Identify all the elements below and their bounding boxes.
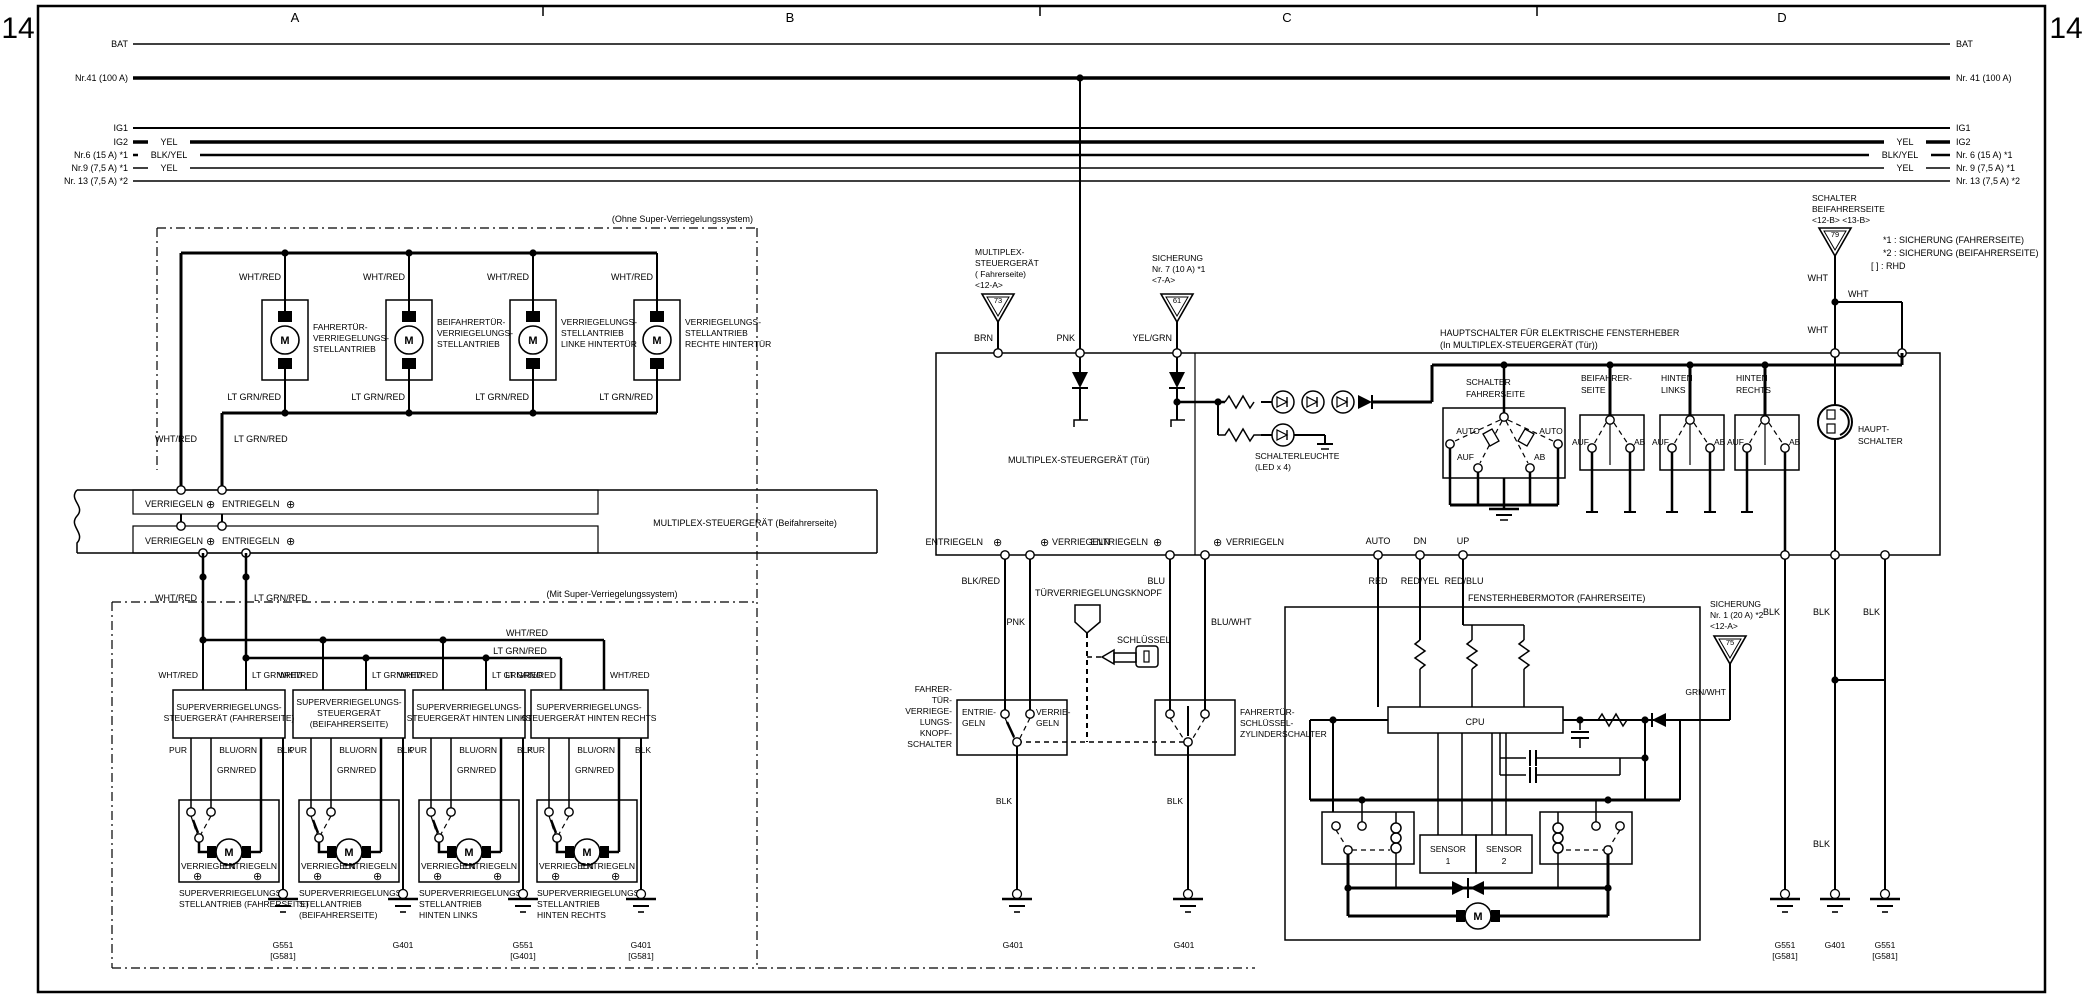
zylinderschalter-label: ZYLINDERSCHALTER bbox=[1240, 729, 1327, 739]
wire-whtred: WHT/RED bbox=[158, 670, 198, 680]
wire-ltgrnred: LT GRN/RED bbox=[475, 392, 529, 402]
plus-icon: ⊕ bbox=[1213, 537, 1222, 549]
wire-grnred: GRN/RED bbox=[457, 765, 496, 775]
entriegeln-label: ENTRIEGELN bbox=[581, 861, 635, 871]
section-ohne-label: (Ohne Super-Verriegelungssystem) bbox=[612, 214, 753, 224]
label-line: STELLANTRIEB bbox=[437, 339, 500, 349]
section-mit-label: (Mit Super-Verriegelungssystem) bbox=[546, 589, 677, 599]
actuator-label: SUPERVERRIEGELUNGS- bbox=[419, 888, 524, 898]
actuator-label: SUPERVERRIEGELUNGS- bbox=[537, 888, 642, 898]
ground-label: [G581] bbox=[1872, 951, 1898, 961]
plus-icon: ⊕ bbox=[313, 871, 322, 883]
ab-label: AB bbox=[1534, 452, 1546, 462]
ground-label: G551 bbox=[1775, 940, 1796, 950]
actuator-label: SUPERVERRIEGELUNGS- bbox=[179, 888, 284, 898]
haupt-schalter-label: HAUPT- bbox=[1858, 424, 1889, 434]
switch-title: SEITE bbox=[1581, 385, 1606, 395]
led-icon bbox=[1272, 424, 1294, 446]
plus-icon: ⊕ bbox=[551, 871, 560, 883]
wire-pnk: PNK bbox=[1056, 333, 1075, 343]
ground-symbol bbox=[1173, 890, 1203, 913]
label-line: VERRIEGELUNGS- bbox=[313, 333, 389, 343]
super-lock-units: SUPERVERRIEGELUNGS- STEUERGERÄT (FAHRERS… bbox=[164, 690, 657, 961]
wire-pur: PUR bbox=[527, 745, 545, 755]
sensor1-label: SENSOR bbox=[1430, 844, 1466, 854]
actuator-label: STELLANTRIEB bbox=[419, 899, 482, 909]
entriegeln-label: ENTRIEGELN bbox=[343, 861, 397, 871]
door-lock-switches: BLK/RED PNK TÜRVERRIEGELUNGSKNOPF SCHLÜS… bbox=[905, 559, 1327, 950]
mux-fahrer-label: ( Fahrerseite) bbox=[975, 269, 1026, 279]
note-2: *2 : SICHERUNG (BEIFAHRERSEITE) bbox=[1883, 248, 2039, 258]
bus-nr6-left: Nr.6 (15 A) *1 bbox=[74, 150, 128, 160]
wire-grnred: GRN/RED bbox=[217, 765, 256, 775]
switch-title: HINTEN bbox=[1736, 373, 1768, 383]
verrie-label: VERRIE- bbox=[1036, 707, 1071, 717]
power-buses: BAT Nr.41 (100 A) IG1 IG2 Nr.6 (15 A) *1… bbox=[64, 39, 2020, 186]
motor-m: M bbox=[652, 335, 661, 347]
knopfschalter-label: KNOPF- bbox=[920, 728, 952, 738]
wire-yel-nr9-right: YEL bbox=[1896, 163, 1913, 173]
column-c: C bbox=[1282, 10, 1291, 25]
mux-fahrer-label: MULTIPLEX- bbox=[975, 247, 1025, 257]
unit-label: STEUERGERÄT (FAHRERSEITE) bbox=[164, 713, 295, 723]
verrie-label: GELN bbox=[1036, 718, 1059, 728]
schalterleuchte-label: (LED x 4) bbox=[1255, 462, 1291, 472]
relay-left bbox=[1322, 800, 1414, 888]
multiplex-tuer-box: MULTIPLEX-STEUERGERÄT (Tür) bbox=[925, 328, 1940, 559]
ground-label: [G581] bbox=[1772, 951, 1798, 961]
haupt-schalter-label: SCHALTER bbox=[1858, 436, 1903, 446]
label-line: VERRIEGELUNGS- bbox=[561, 317, 637, 327]
bus-ig2-left: IG2 bbox=[113, 137, 128, 147]
switch-title: BEIFAHRER- bbox=[1581, 373, 1632, 383]
bus-nr13-right: Nr. 13 (7,5 A) *2 bbox=[1956, 176, 2020, 186]
wire-blk: BLK bbox=[996, 796, 1012, 806]
wire-bluorn: BLU/ORN bbox=[577, 745, 615, 755]
label-line: STELLANTRIEB bbox=[685, 328, 748, 338]
ground-symbol bbox=[1770, 890, 1800, 913]
bus-bat-left: BAT bbox=[111, 39, 128, 49]
wire-redyel: RED/YEL bbox=[1401, 576, 1440, 586]
window-motor: M bbox=[1344, 878, 1611, 929]
auf-label: AUF bbox=[1727, 437, 1744, 447]
led-icon bbox=[1302, 391, 1324, 413]
row2-verriegeln: VERRIEGELN bbox=[145, 536, 203, 546]
label-line: VERRIEGELUNGS- bbox=[685, 317, 761, 327]
schluessel-label: SCHLÜSSEL bbox=[1117, 635, 1171, 645]
schalter-beifahrer-label: SCHALTER bbox=[1812, 193, 1857, 203]
wire-pur: PUR bbox=[289, 745, 307, 755]
ground-label: G401 bbox=[1825, 940, 1846, 950]
auto-label: AUTO bbox=[1539, 426, 1563, 436]
plus-icon: ⊕ bbox=[206, 499, 215, 511]
wire-wht: WHT bbox=[1808, 325, 1829, 335]
ground-label: G401 bbox=[393, 940, 414, 950]
wire-blk: BLK bbox=[1863, 607, 1880, 617]
terminal-entriegeln: ENTRIEGELN bbox=[1090, 537, 1148, 547]
unit-label: (BEIFAHRERSEITE) bbox=[310, 719, 389, 729]
cpu-label: CPU bbox=[1465, 717, 1484, 727]
ground-label: [G581] bbox=[628, 951, 654, 961]
ground-label: G551 bbox=[513, 940, 534, 950]
wire-wht: WHT bbox=[1848, 289, 1869, 299]
super-unit-passenger: SUPERVERRIEGELUNGS- STEUERGERÄT (BEIFAHR… bbox=[289, 690, 418, 950]
ground-label: G401 bbox=[631, 940, 652, 950]
ground-label: [G401] bbox=[510, 951, 536, 961]
terminal-up: UP bbox=[1457, 536, 1470, 546]
wire-pur: PUR bbox=[409, 745, 427, 755]
fenstermotor-title: FENSTERHEBERMOTOR (FAHRERSEITE) bbox=[1468, 593, 1645, 603]
wire-blk: BLK bbox=[1813, 839, 1830, 849]
wire-whtred: WHT/RED bbox=[487, 272, 529, 282]
wire-whtred: WHT/RED bbox=[363, 272, 405, 282]
plus-icon: ⊕ bbox=[611, 871, 620, 883]
haupt-schalter: HAUPT- SCHALTER bbox=[1818, 357, 1903, 555]
schalter-beifahrer-label: <12-B> <13-B> bbox=[1812, 215, 1870, 225]
bus-nr6-right: Nr. 6 (15 A) *1 bbox=[1956, 150, 2013, 160]
auf-label: AUF bbox=[1652, 437, 1669, 447]
switch-title: LINKS bbox=[1661, 385, 1686, 395]
passenger-window-switch: BEIFAHRER- SEITE AUF AB bbox=[1572, 365, 1646, 512]
sicherung1-label: Nr. 1 (20 A) *2 bbox=[1710, 610, 1764, 620]
connector-number: 79 bbox=[1831, 230, 1839, 239]
label-line: STELLANTRIEB bbox=[313, 344, 376, 354]
schalter-beifahrer-label: BEIFAHRERSEITE bbox=[1812, 204, 1885, 214]
plus-icon: ⊕ bbox=[193, 871, 202, 883]
label-line: RECHTE HINTERTÜR bbox=[685, 339, 771, 349]
note-1: *1 : SICHERUNG (FAHRERSEITE) bbox=[1883, 235, 2024, 245]
column-a: A bbox=[291, 10, 300, 25]
unit-label: STEUERGERÄT HINTEN LINKS bbox=[407, 713, 532, 723]
motor-m: M bbox=[404, 335, 413, 347]
wire-ltgrnred: LT GRN/RED bbox=[351, 392, 405, 402]
entriegeln-label: ENTRIEGELN bbox=[463, 861, 517, 871]
sensor2-label: 2 bbox=[1502, 856, 1507, 866]
ground-symbol bbox=[1820, 890, 1850, 913]
ground-label: [G581] bbox=[270, 951, 296, 961]
terminal-entriegeln: ENTRIEGELN bbox=[925, 537, 983, 547]
mux-fahrer-label: <12-A> bbox=[975, 280, 1003, 290]
bus-nr41-right: Nr. 41 (100 A) bbox=[1956, 73, 2012, 83]
plus-icon: ⊕ bbox=[1040, 537, 1049, 549]
wire-blk: BLK bbox=[1813, 607, 1830, 617]
actuator-label: STELLANTRIEB bbox=[537, 899, 600, 909]
wire-grnred: GRN/RED bbox=[337, 765, 376, 775]
wire-ltgrnred: LT GRN/RED bbox=[254, 593, 308, 603]
switch-title: HINTEN bbox=[1661, 373, 1693, 383]
bus-whtred-label: WHT/RED bbox=[506, 628, 548, 638]
actuator-label: HINTEN RECHTS bbox=[537, 910, 606, 920]
sheet-number-right: 14 bbox=[2049, 12, 2082, 45]
driver-window-switch: SCHALTER FAHRERSEITE AUTO AUTO AUF AB bbox=[1443, 365, 1565, 520]
auf-label: AUF bbox=[1457, 452, 1474, 462]
hauptschalter-header: HAUPTSCHALTER FÜR ELEKTRISCHE FENSTERHEB… bbox=[1440, 328, 1680, 338]
bus-bat-right: BAT bbox=[1956, 39, 1973, 49]
actuator-label: SUPERVERRIEGELUNGS- bbox=[299, 888, 404, 898]
label-line: LINKE HINTERTÜR bbox=[561, 339, 637, 349]
wire-pur: PUR bbox=[169, 745, 187, 755]
auf-label: AUF bbox=[1572, 437, 1589, 447]
wire-pnk: PNK bbox=[1006, 617, 1025, 627]
hauptschalter-header: (In MULTIPLEX-STEUERGERÄT (Tür)) bbox=[1440, 340, 1598, 350]
knopfschalter-label: SCHALTER bbox=[907, 739, 952, 749]
wire-ltgrnred: LT GRN/RED bbox=[227, 392, 281, 402]
entrie-label: GELN bbox=[962, 718, 985, 728]
bus-nr9-right: Nr. 9 (7,5 A) *1 bbox=[1956, 163, 2015, 173]
knopfschalter-label: VERRIEGE- bbox=[905, 706, 952, 716]
wire-ltgrnred: LT GRN/RED bbox=[599, 392, 653, 402]
motor-m: M bbox=[280, 335, 289, 347]
motor-m: M bbox=[1473, 911, 1482, 923]
right-side: SCHALTER BEIFAHRERSEITE <12-B> <13-B> 79… bbox=[1763, 193, 2039, 961]
sicherung1-label: SICHERUNG bbox=[1710, 599, 1761, 609]
bus-nr9-left: Nr.9 (7,5 A) *1 bbox=[71, 163, 128, 173]
wire-bluorn: BLU/ORN bbox=[219, 745, 257, 755]
ground-label: G551 bbox=[273, 940, 294, 950]
bus-ig2-right: IG2 bbox=[1956, 137, 1971, 147]
actuator-label: STELLANTRIEB bbox=[299, 899, 362, 909]
wire-whtred: WHT/RED bbox=[155, 593, 197, 603]
wiring-diagram: 14 14 A B C D BAT Nr.41 (100 A) IG1 IG2 … bbox=[0, 0, 2084, 1000]
led-icon bbox=[1332, 391, 1354, 413]
entrie-label: ENTRIE- bbox=[962, 707, 996, 717]
wire-yel-nr9-left: YEL bbox=[160, 163, 177, 173]
wire-ltgrnred: LT GRN/RED bbox=[505, 670, 556, 680]
internal-diode-2 bbox=[1169, 357, 1185, 427]
wire-whtred: WHT/RED bbox=[239, 272, 281, 282]
wire-whtred: WHT/RED bbox=[610, 670, 650, 680]
motor-m: M bbox=[582, 847, 591, 859]
terminal-verriegeln: VERRIEGELN bbox=[1226, 537, 1284, 547]
connector-number: 75 bbox=[1726, 638, 1734, 647]
rear-right-window-switch: HINTEN RECHTS AUF AB bbox=[1727, 365, 1801, 555]
wire-ltgrnred: LT GRN/RED bbox=[234, 434, 288, 444]
wire-whtred: WHT/RED bbox=[611, 272, 653, 282]
middle-feeds: MULTIPLEX- STEUERGERÄT ( Fahrerseite) <1… bbox=[974, 74, 1206, 349]
note-3: [ ] : RHD bbox=[1871, 261, 1906, 271]
wiring-diagram-page: 14 14 A B C D BAT Nr.41 (100 A) IG1 IG2 … bbox=[0, 0, 2084, 1000]
wire-yel-ig2-right: YEL bbox=[1896, 137, 1913, 147]
plus-icon: ⊕ bbox=[286, 536, 295, 548]
wire-whtred: WHT/RED bbox=[278, 670, 318, 680]
row2-entriegeln: ENTRIEGELN bbox=[222, 536, 280, 546]
connector-number: 61 bbox=[1173, 296, 1181, 305]
bus-ig1-right: IG1 bbox=[1956, 123, 1971, 133]
terminal-dn: DN bbox=[1414, 536, 1427, 546]
plus-icon: ⊕ bbox=[1153, 537, 1162, 549]
multiplex-tuer-title: MULTIPLEX-STEUERGERÄT (Tür) bbox=[1008, 455, 1150, 465]
wire-wht: WHT bbox=[1808, 273, 1829, 283]
schalterleuchte-circuit: SCHALTERLEUCHTE (LED x 4) bbox=[1173, 365, 1432, 472]
door-lock-actuators: M WHT/RED LT GRN/RED FAHRERTÜR- VERRIEGE… bbox=[181, 249, 771, 490]
ab-label: AB bbox=[1789, 437, 1801, 447]
column-d: D bbox=[1777, 10, 1786, 25]
terminal-auto: AUTO bbox=[1366, 536, 1391, 546]
sicherung7-label: <7-A> bbox=[1152, 275, 1175, 285]
super-unit-driver: SUPERVERRIEGELUNGS- STEUERGERÄT (FAHRERS… bbox=[164, 690, 309, 961]
key-icon bbox=[1087, 646, 1158, 667]
label-line: FAHRERTÜR- bbox=[313, 322, 368, 332]
column-b: B bbox=[786, 10, 795, 25]
label-line: BEIFAHRERTÜR- bbox=[437, 317, 505, 327]
motor-m: M bbox=[528, 335, 537, 347]
label-line: STELLANTRIEB bbox=[561, 328, 624, 338]
wire-bluwht: BLU/WHT bbox=[1211, 617, 1252, 627]
knopf-schalter-box: ENTRIE- GELN VERRIE- GELN bbox=[957, 700, 1071, 894]
ground-label: G401 bbox=[1174, 940, 1195, 950]
lock-actuator-rear-right: M WHT/RED LT GRN/RED VERRIEGELUNGS- STEL… bbox=[599, 253, 771, 413]
knopfschalter-label: TÜR- bbox=[932, 695, 952, 705]
zylinderschalter-label: FAHRERTÜR- bbox=[1240, 707, 1295, 717]
auto-label: AUTO bbox=[1456, 426, 1480, 436]
schalterleuchte-label: SCHALTERLEUCHTE bbox=[1255, 451, 1340, 461]
switch-title: FAHRERSEITE bbox=[1466, 389, 1525, 399]
window-motor-unit: RED RED/YEL RED/BLU FENSTERHEBERMOTOR (F… bbox=[1285, 559, 1764, 940]
plus-icon: ⊕ bbox=[993, 537, 1002, 549]
wire-whtred: WHT/RED bbox=[398, 670, 438, 680]
wire-bluorn: BLU/ORN bbox=[339, 745, 377, 755]
actuator-label: STELLANTRIEB (FAHRERSEITE) bbox=[179, 899, 309, 909]
sicherung7-label: Nr. 7 (10 A) *1 bbox=[1152, 264, 1206, 274]
ground-symbol bbox=[1870, 890, 1900, 913]
wire-yelgrn: YEL/GRN bbox=[1132, 333, 1172, 343]
wire-grnwht: GRN/WHT bbox=[1685, 687, 1726, 697]
entriegeln-label: ENTRIEGELN bbox=[223, 861, 277, 871]
plus-icon: ⊕ bbox=[253, 871, 262, 883]
actuator-label: (BEIFAHRERSEITE) bbox=[299, 910, 378, 920]
plus-icon: ⊕ bbox=[433, 871, 442, 883]
sheet-number-left: 14 bbox=[1, 12, 34, 45]
unit-label: SUPERVERRIEGELUNGS- bbox=[176, 702, 281, 712]
unit-label: SUPERVERRIEGELUNGS- bbox=[536, 702, 641, 712]
motor-m: M bbox=[464, 847, 473, 859]
bus-nr13-left: Nr. 13 (7,5 A) *2 bbox=[64, 176, 128, 186]
plus-icon: ⊕ bbox=[206, 536, 215, 548]
knopfschalter-label: FAHRER- bbox=[915, 684, 952, 694]
bus-nr41-left: Nr.41 (100 A) bbox=[75, 73, 128, 83]
bus-ltgrnred-label: LT GRN/RED bbox=[493, 646, 547, 656]
mux-fahrer-label: STEUERGERÄT bbox=[975, 258, 1039, 268]
ab-label: AB bbox=[1714, 437, 1726, 447]
wire-blk: BLK bbox=[1763, 607, 1780, 617]
ground-label: G401 bbox=[1003, 940, 1024, 950]
row1-entriegeln: ENTRIEGELN bbox=[222, 499, 280, 509]
super-unit-rear-left: SUPERVERRIEGELUNGS- STEUERGERÄT HINTEN L… bbox=[407, 690, 538, 961]
wire-bluorn: BLU/ORN bbox=[459, 745, 497, 755]
wire-brn: BRN bbox=[974, 333, 993, 343]
rear-left-window-switch: HINTEN LINKS AUF AB bbox=[1652, 365, 1726, 512]
unit-label: SUPERVERRIEGELUNGS- bbox=[416, 702, 521, 712]
actuator-label: HINTEN LINKS bbox=[419, 910, 478, 920]
relay-right bbox=[1540, 800, 1632, 888]
wire-whtred: WHT/RED bbox=[155, 434, 197, 444]
plus-icon: ⊕ bbox=[493, 871, 502, 883]
sensor1-label: 1 bbox=[1446, 856, 1451, 866]
sicherung7-label: SICHERUNG bbox=[1152, 253, 1203, 263]
unit-label: STEUERGERÄT HINTEN RECHTS bbox=[522, 713, 657, 723]
wire-blk: BLK bbox=[635, 745, 651, 755]
motor-m: M bbox=[224, 847, 233, 859]
door-knob-icon bbox=[1075, 605, 1100, 633]
unit-label: SUPERVERRIEGELUNGS- bbox=[296, 697, 401, 707]
led-icon bbox=[1272, 391, 1294, 413]
ground-symbol bbox=[1002, 890, 1032, 913]
wire-blkred: BLK/RED bbox=[961, 576, 1000, 586]
unit-label: STEUERGERÄT bbox=[317, 708, 381, 718]
super-lock-system: WHT/RED LT GRN/RED WHT/RED LT GRN/RED WH… bbox=[155, 553, 650, 690]
wire-blkyel-nr6-right: BLK/YEL bbox=[1882, 150, 1919, 160]
super-unit-rear-right: SUPERVERRIEGELUNGS- STEUERGERÄT HINTEN R… bbox=[522, 690, 657, 961]
knopfschalter-label: LUNGS- bbox=[920, 717, 952, 727]
ab-label: AB bbox=[1634, 437, 1646, 447]
wire-yel-ig2-left: YEL bbox=[160, 137, 177, 147]
plus-icon: ⊕ bbox=[373, 871, 382, 883]
wire-grnred: GRN/RED bbox=[575, 765, 614, 775]
wire-redblu: RED/BLU bbox=[1444, 576, 1483, 586]
plus-icon: ⊕ bbox=[286, 499, 295, 511]
motor-m: M bbox=[344, 847, 353, 859]
wire-blu: BLU bbox=[1147, 576, 1165, 586]
multiplex-beifahrer-title: MULTIPLEX-STEUERGERÄT (Beifahrerseite) bbox=[653, 518, 837, 528]
wire-blkyel-nr6-left: BLK/YEL bbox=[151, 150, 188, 160]
internal-diode-1 bbox=[1072, 357, 1088, 427]
ground-label: G551 bbox=[1875, 940, 1896, 950]
sensor2-label: SENSOR bbox=[1486, 844, 1522, 854]
wire-red: RED bbox=[1368, 576, 1388, 586]
label-line: VERRIEGELUNGS- bbox=[437, 328, 513, 338]
row1-verriegeln: VERRIEGELN bbox=[145, 499, 203, 509]
connector-number: 73 bbox=[994, 296, 1002, 305]
wire-blk: BLK bbox=[1167, 796, 1183, 806]
tuerknopf-label: TÜRVERRIEGELUNGSKNOPF bbox=[1035, 588, 1162, 598]
sicherung1-label: <12-A> bbox=[1710, 621, 1738, 631]
bus-ig1-left: IG1 bbox=[113, 123, 128, 133]
